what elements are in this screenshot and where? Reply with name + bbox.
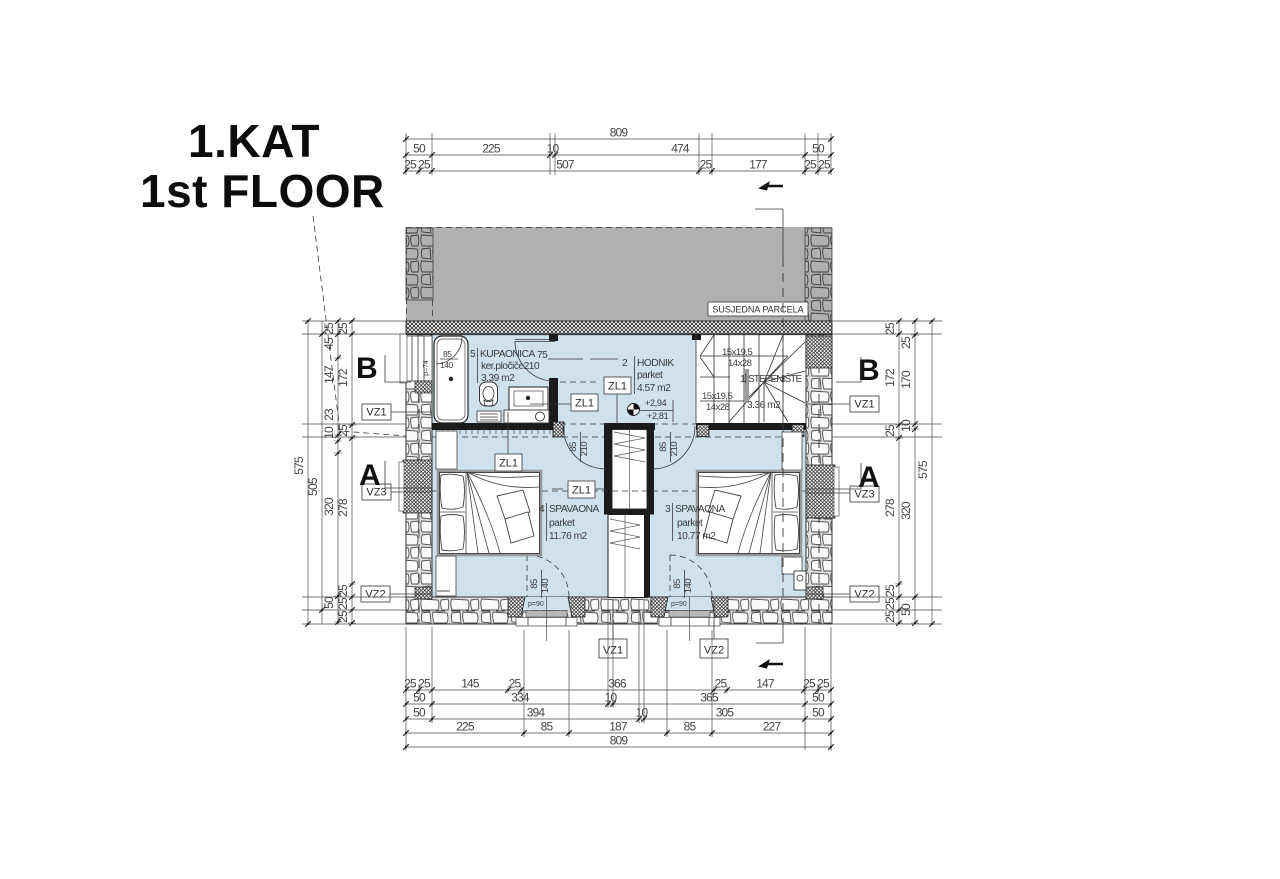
svg-text:50: 50	[812, 142, 825, 156]
svg-text:575: 575	[916, 460, 930, 479]
svg-text:50: 50	[812, 691, 825, 705]
svg-text:10: 10	[547, 142, 560, 156]
svg-text:50: 50	[322, 596, 336, 609]
svg-text:p=90: p=90	[671, 601, 687, 608]
svg-text:394: 394	[527, 706, 546, 720]
svg-text:3.39 m2: 3.39 m2	[481, 373, 515, 384]
svg-text:177: 177	[749, 158, 768, 172]
svg-text:ZL1: ZL1	[608, 381, 627, 393]
svg-text:B: B	[356, 352, 378, 385]
svg-text:10.77 m2: 10.77 m2	[677, 531, 716, 542]
svg-text:4.57 m2: 4.57 m2	[637, 383, 671, 394]
svg-text:25: 25	[418, 158, 431, 172]
svg-text:172: 172	[883, 368, 897, 387]
svg-text:1st FLOOR: 1st FLOOR	[140, 165, 385, 217]
svg-text:VZ2: VZ2	[365, 589, 385, 601]
svg-text:4: 4	[539, 504, 545, 515]
svg-text:225: 225	[482, 142, 501, 156]
svg-text:85: 85	[541, 720, 554, 734]
svg-text:25: 25	[509, 677, 522, 691]
svg-text:305: 305	[716, 706, 735, 720]
svg-text:172: 172	[336, 368, 350, 387]
svg-text:75: 75	[537, 350, 548, 361]
svg-text:25: 25	[418, 677, 431, 691]
svg-text:p=74: p=74	[423, 360, 430, 376]
svg-text:50: 50	[413, 142, 426, 156]
svg-text:505: 505	[306, 477, 320, 496]
svg-text:225: 225	[456, 720, 475, 734]
svg-text:25: 25	[336, 584, 350, 597]
svg-text:85: 85	[529, 579, 540, 589]
svg-text:320: 320	[322, 497, 336, 516]
svg-text:VZ1: VZ1	[854, 399, 874, 411]
svg-text:3.36 m2: 3.36 m2	[747, 400, 781, 411]
svg-text:1: 1	[740, 374, 746, 385]
svg-text:25: 25	[883, 584, 897, 597]
svg-text:145: 145	[461, 677, 480, 691]
svg-text:ZL1: ZL1	[572, 485, 591, 497]
svg-text:parket: parket	[549, 518, 575, 529]
svg-text:14x28: 14x28	[706, 402, 730, 413]
svg-text:2: 2	[622, 358, 628, 369]
svg-text:A: A	[359, 459, 381, 492]
svg-text:VZ2: VZ2	[704, 645, 724, 657]
svg-text:147: 147	[756, 677, 775, 691]
svg-text:278: 278	[336, 498, 350, 517]
svg-text:5: 5	[470, 349, 476, 360]
svg-text:85: 85	[568, 442, 579, 452]
svg-text:SUSJEDNA PARCELA: SUSJEDNA PARCELA	[712, 305, 803, 315]
svg-text:474: 474	[671, 142, 690, 156]
svg-text:parket: parket	[637, 370, 663, 381]
svg-text:85: 85	[443, 349, 452, 359]
svg-text:50: 50	[812, 706, 825, 720]
svg-text:320: 320	[899, 501, 913, 520]
svg-text:SPAVAONA: SPAVAONA	[675, 504, 725, 515]
svg-text:25: 25	[818, 158, 831, 172]
svg-text:10: 10	[899, 419, 913, 432]
svg-text:10: 10	[636, 706, 649, 720]
svg-text:809: 809	[610, 126, 629, 140]
svg-text:85: 85	[684, 720, 697, 734]
svg-text:187: 187	[609, 720, 628, 734]
svg-text:25: 25	[336, 424, 350, 437]
svg-text:25: 25	[803, 677, 816, 691]
svg-text:507: 507	[556, 158, 575, 172]
svg-text:278: 278	[883, 498, 897, 517]
svg-text:85: 85	[658, 442, 669, 452]
svg-text:KUPAONICA: KUPAONICA	[480, 349, 535, 360]
svg-text:VZ2: VZ2	[854, 589, 874, 601]
svg-text:50: 50	[413, 706, 426, 720]
svg-text:23: 23	[322, 408, 336, 421]
svg-text:25: 25	[700, 158, 713, 172]
svg-text:50: 50	[413, 691, 426, 705]
svg-text:366: 366	[608, 677, 627, 691]
svg-text:45: 45	[322, 337, 336, 350]
svg-text:85: 85	[672, 579, 683, 589]
svg-text:25: 25	[404, 677, 417, 691]
svg-text:15x19,5: 15x19,5	[702, 391, 733, 402]
svg-text:575: 575	[292, 456, 306, 475]
svg-text:STEPENIŠTE: STEPENIŠTE	[748, 372, 802, 385]
svg-text:25: 25	[322, 322, 336, 335]
svg-text:365: 365	[700, 691, 719, 705]
svg-text:parket: parket	[677, 518, 703, 529]
svg-text:14x28: 14x28	[728, 358, 752, 369]
svg-text:25: 25	[817, 677, 830, 691]
svg-text:25: 25	[404, 158, 417, 172]
svg-text:25: 25	[715, 677, 728, 691]
svg-text:ker.pločiče210: ker.pločiče210	[481, 361, 540, 372]
svg-text:25: 25	[336, 597, 350, 610]
svg-text:170: 170	[899, 370, 913, 389]
svg-text:25: 25	[804, 158, 817, 172]
svg-text:25: 25	[883, 322, 897, 335]
svg-text:10: 10	[322, 426, 336, 439]
svg-text:147: 147	[322, 365, 336, 384]
svg-text:3: 3	[665, 504, 671, 515]
svg-text:1.KAT: 1.KAT	[188, 115, 320, 167]
svg-text:+2,81: +2,81	[647, 411, 669, 421]
svg-text:809: 809	[610, 734, 629, 748]
svg-text:25: 25	[899, 336, 913, 349]
svg-text:VZ1: VZ1	[366, 407, 386, 419]
svg-text:50: 50	[899, 603, 913, 616]
svg-text:+2,94: +2,94	[645, 398, 667, 408]
svg-text:ZL1: ZL1	[499, 458, 518, 470]
svg-text:p=90: p=90	[528, 601, 544, 608]
svg-text:227: 227	[763, 720, 782, 734]
svg-text:334: 334	[511, 691, 530, 705]
svg-text:ZL1: ZL1	[575, 398, 594, 410]
svg-text:25: 25	[883, 610, 897, 623]
svg-text:11.76 m2: 11.76 m2	[549, 531, 588, 542]
svg-text:10: 10	[605, 691, 618, 705]
svg-text:25: 25	[883, 597, 897, 610]
svg-text:25: 25	[883, 424, 897, 437]
svg-text:25: 25	[336, 610, 350, 623]
svg-text:HODNIK: HODNIK	[637, 358, 674, 369]
svg-text:15x19,5: 15x19,5	[722, 347, 753, 358]
svg-text:25: 25	[336, 322, 350, 335]
svg-text:SPAVAONA: SPAVAONA	[549, 504, 599, 515]
